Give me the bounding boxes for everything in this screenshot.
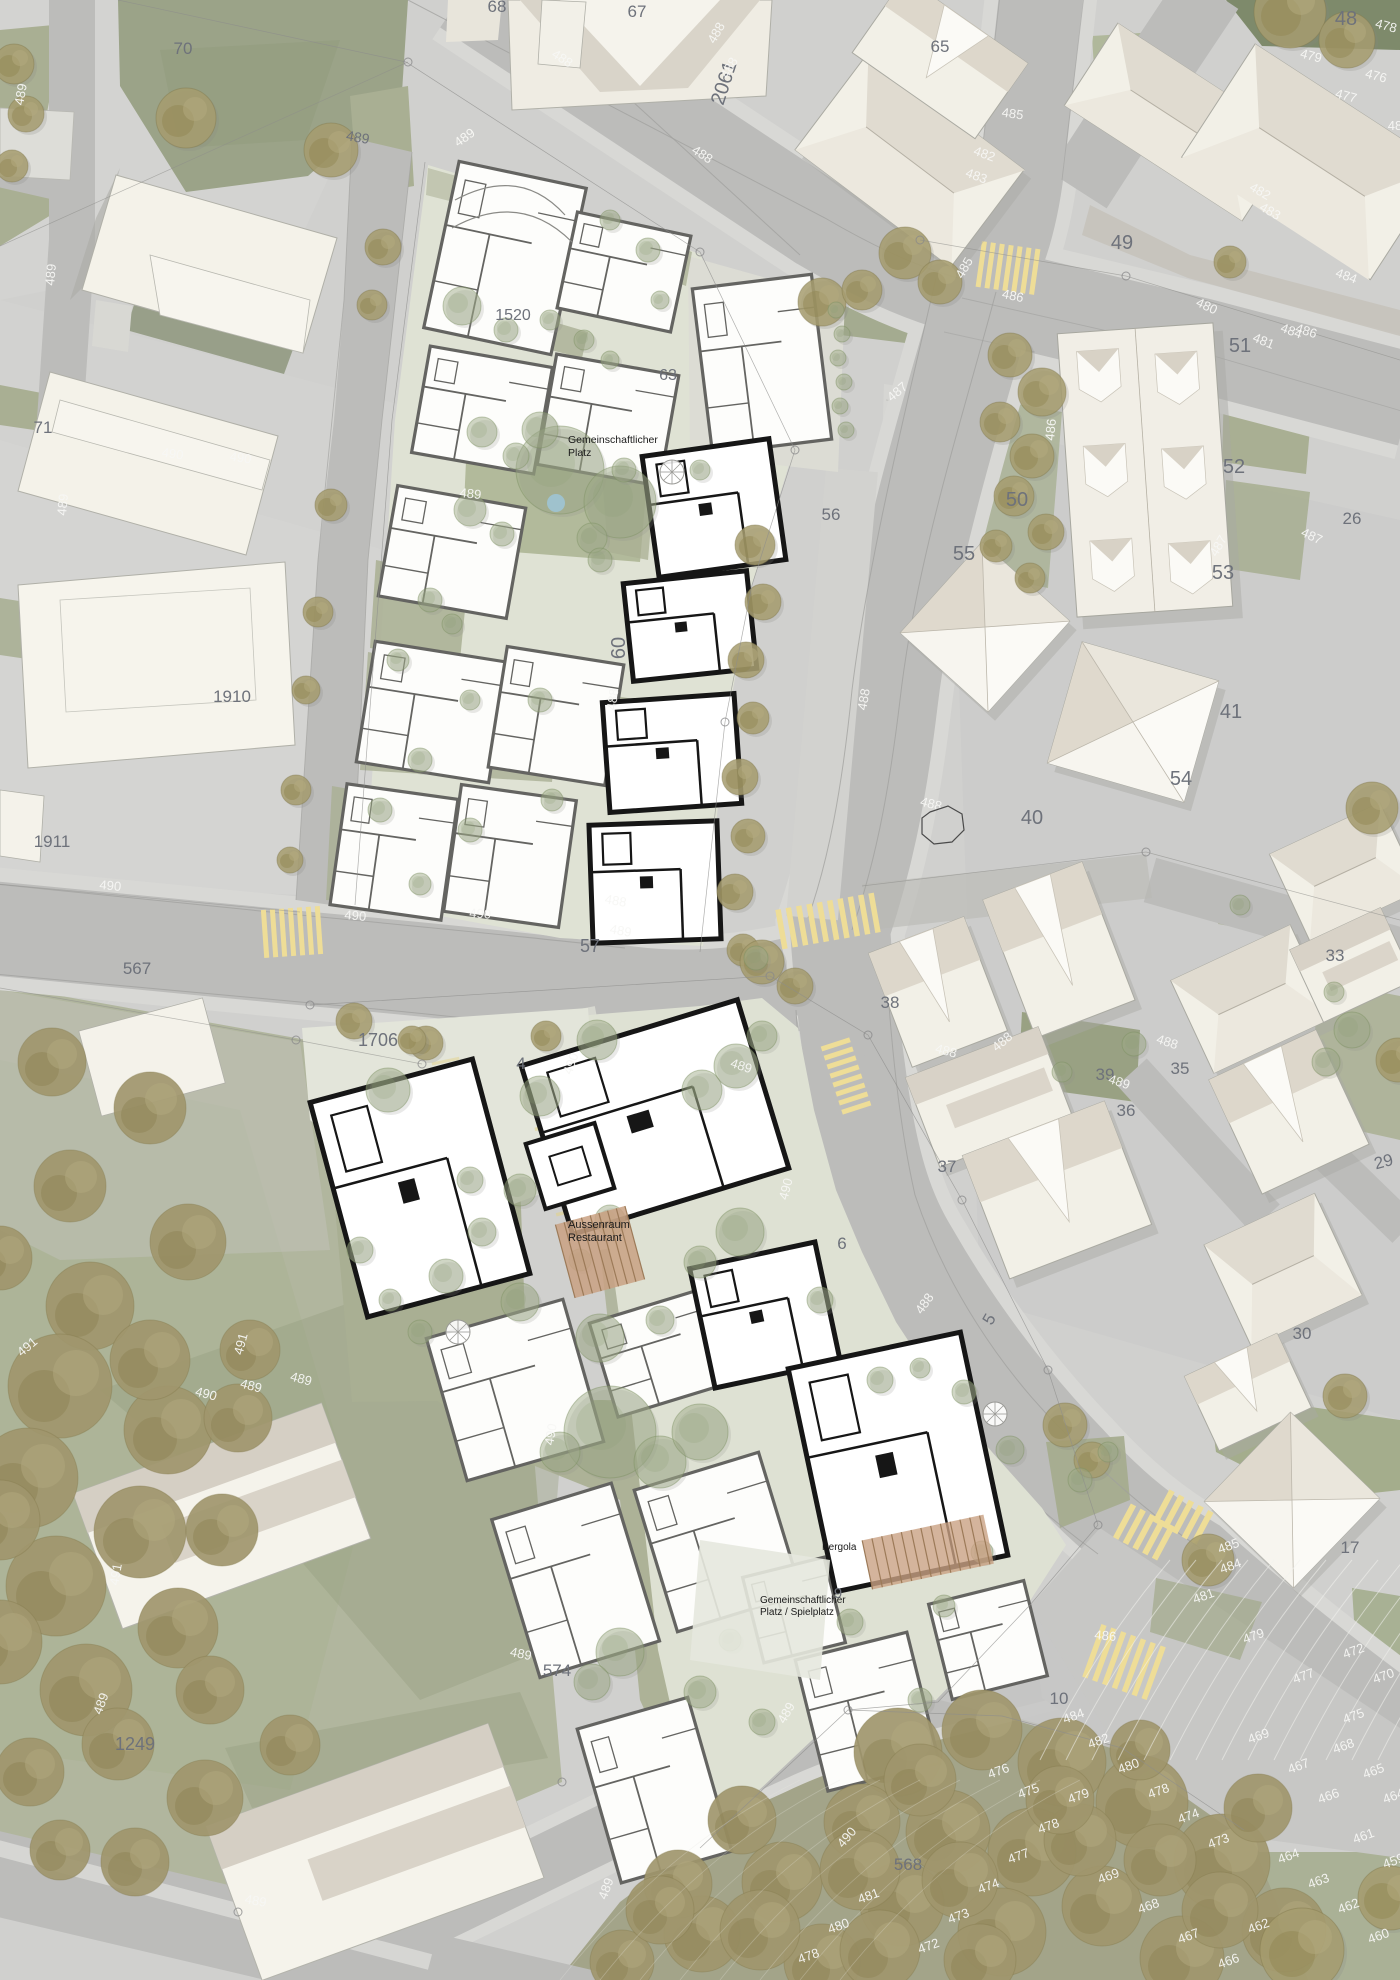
svg-text:17: 17	[1341, 1538, 1360, 1557]
svg-text:55: 55	[953, 543, 975, 565]
svg-text:68: 68	[488, 0, 507, 16]
svg-text:486: 486	[1042, 418, 1059, 441]
svg-text:1910: 1910	[213, 687, 251, 706]
svg-text:65: 65	[931, 37, 950, 56]
svg-text:41: 41	[1220, 701, 1242, 723]
svg-text:10: 10	[1050, 1689, 1069, 1708]
svg-text:56: 56	[822, 505, 841, 524]
svg-text:36: 36	[1117, 1101, 1136, 1120]
svg-text:Gemeinschaftlicher: Gemeinschaftlicher	[760, 1595, 846, 1606]
svg-text:486: 486	[1094, 1627, 1117, 1644]
svg-text:574: 574	[543, 1661, 571, 1680]
svg-text:52: 52	[1223, 456, 1245, 478]
svg-text:67: 67	[628, 2, 647, 21]
svg-text:1520: 1520	[495, 307, 531, 324]
svg-text:490: 490	[229, 449, 253, 467]
svg-text:26: 26	[1343, 509, 1362, 528]
svg-text:567: 567	[123, 959, 151, 978]
svg-text:Platz: Platz	[568, 447, 591, 459]
svg-text:63: 63	[659, 367, 677, 384]
svg-text:71: 71	[34, 418, 53, 437]
svg-text:4: 4	[516, 1054, 525, 1073]
svg-text:490: 490	[344, 907, 367, 924]
svg-text:6: 6	[837, 1234, 846, 1253]
svg-text:Gemeinschaftlicher: Gemeinschaftlicher	[568, 434, 658, 446]
svg-text:489: 489	[459, 485, 482, 502]
svg-text:Platz / Spielplatz: Platz / Spielplatz	[760, 1607, 834, 1618]
svg-text:490: 490	[99, 877, 122, 894]
svg-text:53: 53	[1212, 562, 1234, 584]
svg-text:48: 48	[1335, 8, 1357, 30]
svg-text:33: 33	[1326, 946, 1345, 965]
svg-text:60: 60	[608, 637, 630, 659]
svg-text:57: 57	[580, 936, 600, 956]
svg-text:489: 489	[54, 493, 71, 516]
svg-text:Aussenraum: Aussenraum	[568, 1219, 630, 1231]
svg-text:37: 37	[938, 1157, 957, 1176]
svg-text:Pergola: Pergola	[822, 1542, 857, 1553]
svg-text:568: 568	[894, 1855, 922, 1874]
svg-text:1706: 1706	[358, 1030, 398, 1050]
svg-text:1249: 1249	[115, 1734, 155, 1754]
svg-text:38: 38	[881, 993, 900, 1012]
svg-text:490: 490	[469, 905, 491, 921]
svg-text:1911: 1911	[34, 832, 71, 851]
svg-text:Restaurant: Restaurant	[568, 1232, 622, 1244]
svg-text:48: 48	[1388, 118, 1400, 133]
svg-text:30: 30	[1293, 1324, 1312, 1343]
svg-text:35: 35	[1171, 1059, 1190, 1078]
svg-text:50: 50	[1006, 489, 1028, 511]
svg-text:40: 40	[1021, 807, 1043, 829]
svg-text:485: 485	[1001, 105, 1025, 123]
svg-text:489: 489	[42, 263, 59, 286]
svg-text:49: 49	[1111, 232, 1133, 254]
svg-text:54: 54	[1170, 768, 1192, 790]
svg-text:51: 51	[1229, 335, 1251, 357]
svg-text:488: 488	[604, 688, 622, 712]
svg-text:490: 490	[161, 445, 185, 463]
svg-text:70: 70	[174, 39, 193, 58]
